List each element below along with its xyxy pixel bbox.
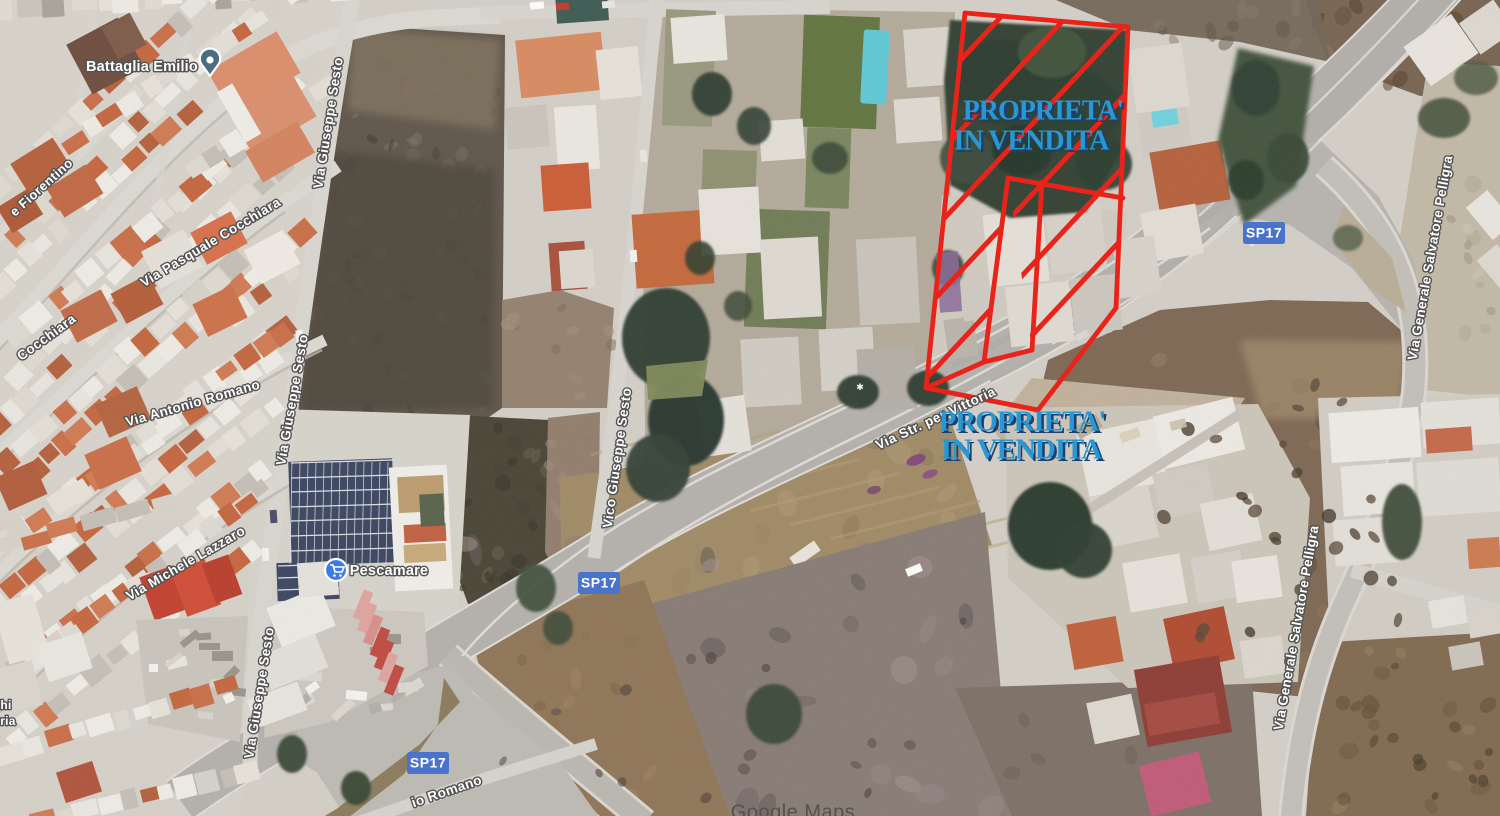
svg-text:PROPRIETA': PROPRIETA' [963, 95, 1124, 126]
svg-text:Battaglia Emilio: Battaglia Emilio [86, 59, 198, 75]
svg-text:IN VENDITA: IN VENDITA [941, 434, 1103, 466]
svg-text:Google Maps: Google Maps [731, 801, 855, 816]
svg-text:IN VENDITA: IN VENDITA [954, 125, 1110, 156]
svg-text:SP17: SP17 [581, 575, 617, 591]
svg-text:Pescamare: Pescamare [350, 563, 428, 579]
svg-text:SP17: SP17 [1246, 225, 1282, 241]
svg-text:✱: ✱ [856, 382, 864, 392]
svg-text:ria: ria [0, 714, 16, 728]
svg-text:SP17: SP17 [410, 755, 446, 771]
svg-text:hi: hi [0, 698, 11, 712]
